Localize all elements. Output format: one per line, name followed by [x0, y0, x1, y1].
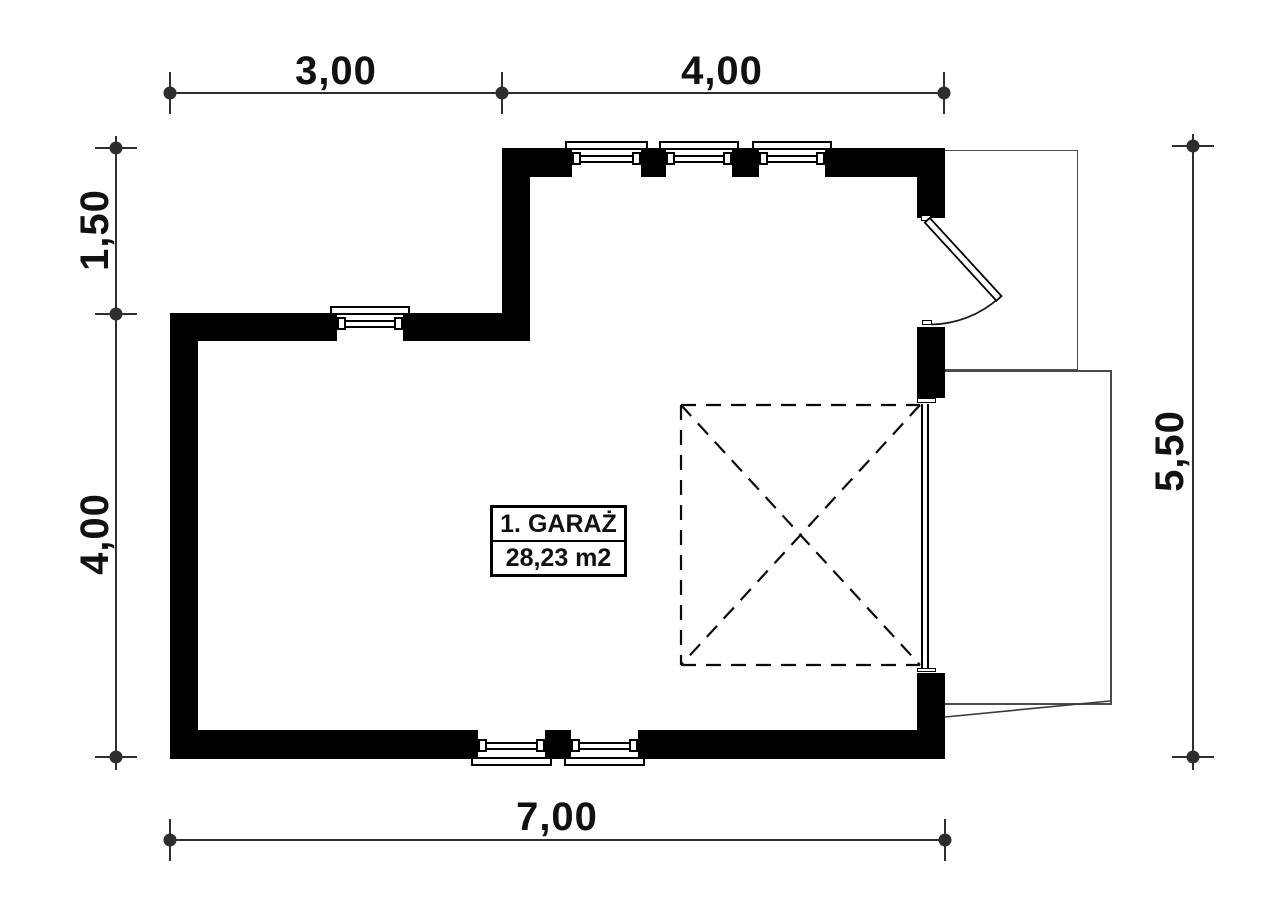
car-space-marker: [681, 405, 920, 665]
room-label-box: 1. GARAŻ 28,23 m2: [490, 505, 627, 577]
room-name: 1. GARAŻ: [493, 508, 624, 542]
room-area: 28,23 m2: [493, 542, 624, 574]
dim-bottom-dot-right: [939, 834, 952, 847]
door-leaf: [925, 218, 1002, 301]
dim-top-dot-mid: [496, 87, 509, 100]
dim-right-line: [1192, 134, 1194, 770]
dim-left-dot-mid: [110, 308, 123, 321]
floor-plan-canvas: 1. GARAŻ 28,23 m2 3,00 4,00 7,00 1,50 4,…: [0, 0, 1280, 906]
driveway-diagonal-line: [945, 701, 1110, 717]
door-swing-arc: [932, 298, 1000, 325]
dim-bottom-dot-left: [164, 834, 177, 847]
dim-top-line: [170, 92, 944, 94]
dim-label-left-lower: 4,00: [75, 493, 115, 575]
dim-label-bottom: 7,00: [516, 797, 598, 837]
dim-label-top-left: 3,00: [295, 51, 377, 91]
dim-label-right: 5,50: [1150, 410, 1190, 492]
dim-right-dot-bottom: [1187, 751, 1200, 764]
dim-left-dot-bottom: [110, 751, 123, 764]
dim-bottom-line: [170, 839, 945, 841]
dim-label-top-right: 4,00: [681, 51, 763, 91]
dim-left-dot-top: [110, 142, 123, 155]
dim-label-left-upper: 1,50: [75, 189, 115, 271]
dim-right-dot-top: [1187, 140, 1200, 153]
linework-layer: [0, 0, 1280, 906]
dim-top-dot-left: [164, 87, 177, 100]
dim-top-dot-right: [938, 87, 951, 100]
entry-door: [925, 218, 1002, 325]
